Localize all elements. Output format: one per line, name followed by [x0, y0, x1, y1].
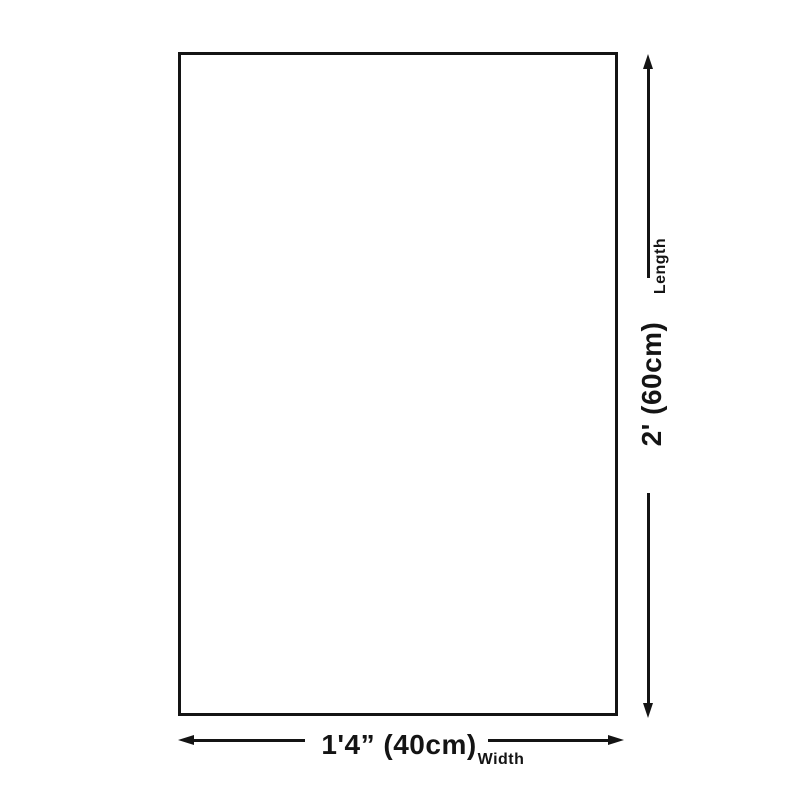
width-value-label: 1'4” (40cm)	[321, 731, 476, 759]
arrowhead-down-icon	[643, 703, 653, 718]
arrowhead-right-icon	[608, 735, 624, 745]
product-outline-rectangle	[178, 52, 618, 716]
length-dimension-line-top	[647, 64, 650, 278]
length-dimension-line-bottom	[647, 493, 650, 706]
length-axis-label: Length	[653, 238, 669, 294]
length-value-label: 2' (60cm)	[638, 322, 666, 447]
width-axis-label: Width	[478, 752, 525, 768]
width-dimension-line-left	[193, 739, 305, 742]
product-dimensions-diagram: Length 2' (60cm) 1'4” (40cm) Width	[0, 0, 800, 800]
arrowhead-left-icon	[178, 735, 194, 745]
width-dimension-line-right	[488, 739, 608, 742]
